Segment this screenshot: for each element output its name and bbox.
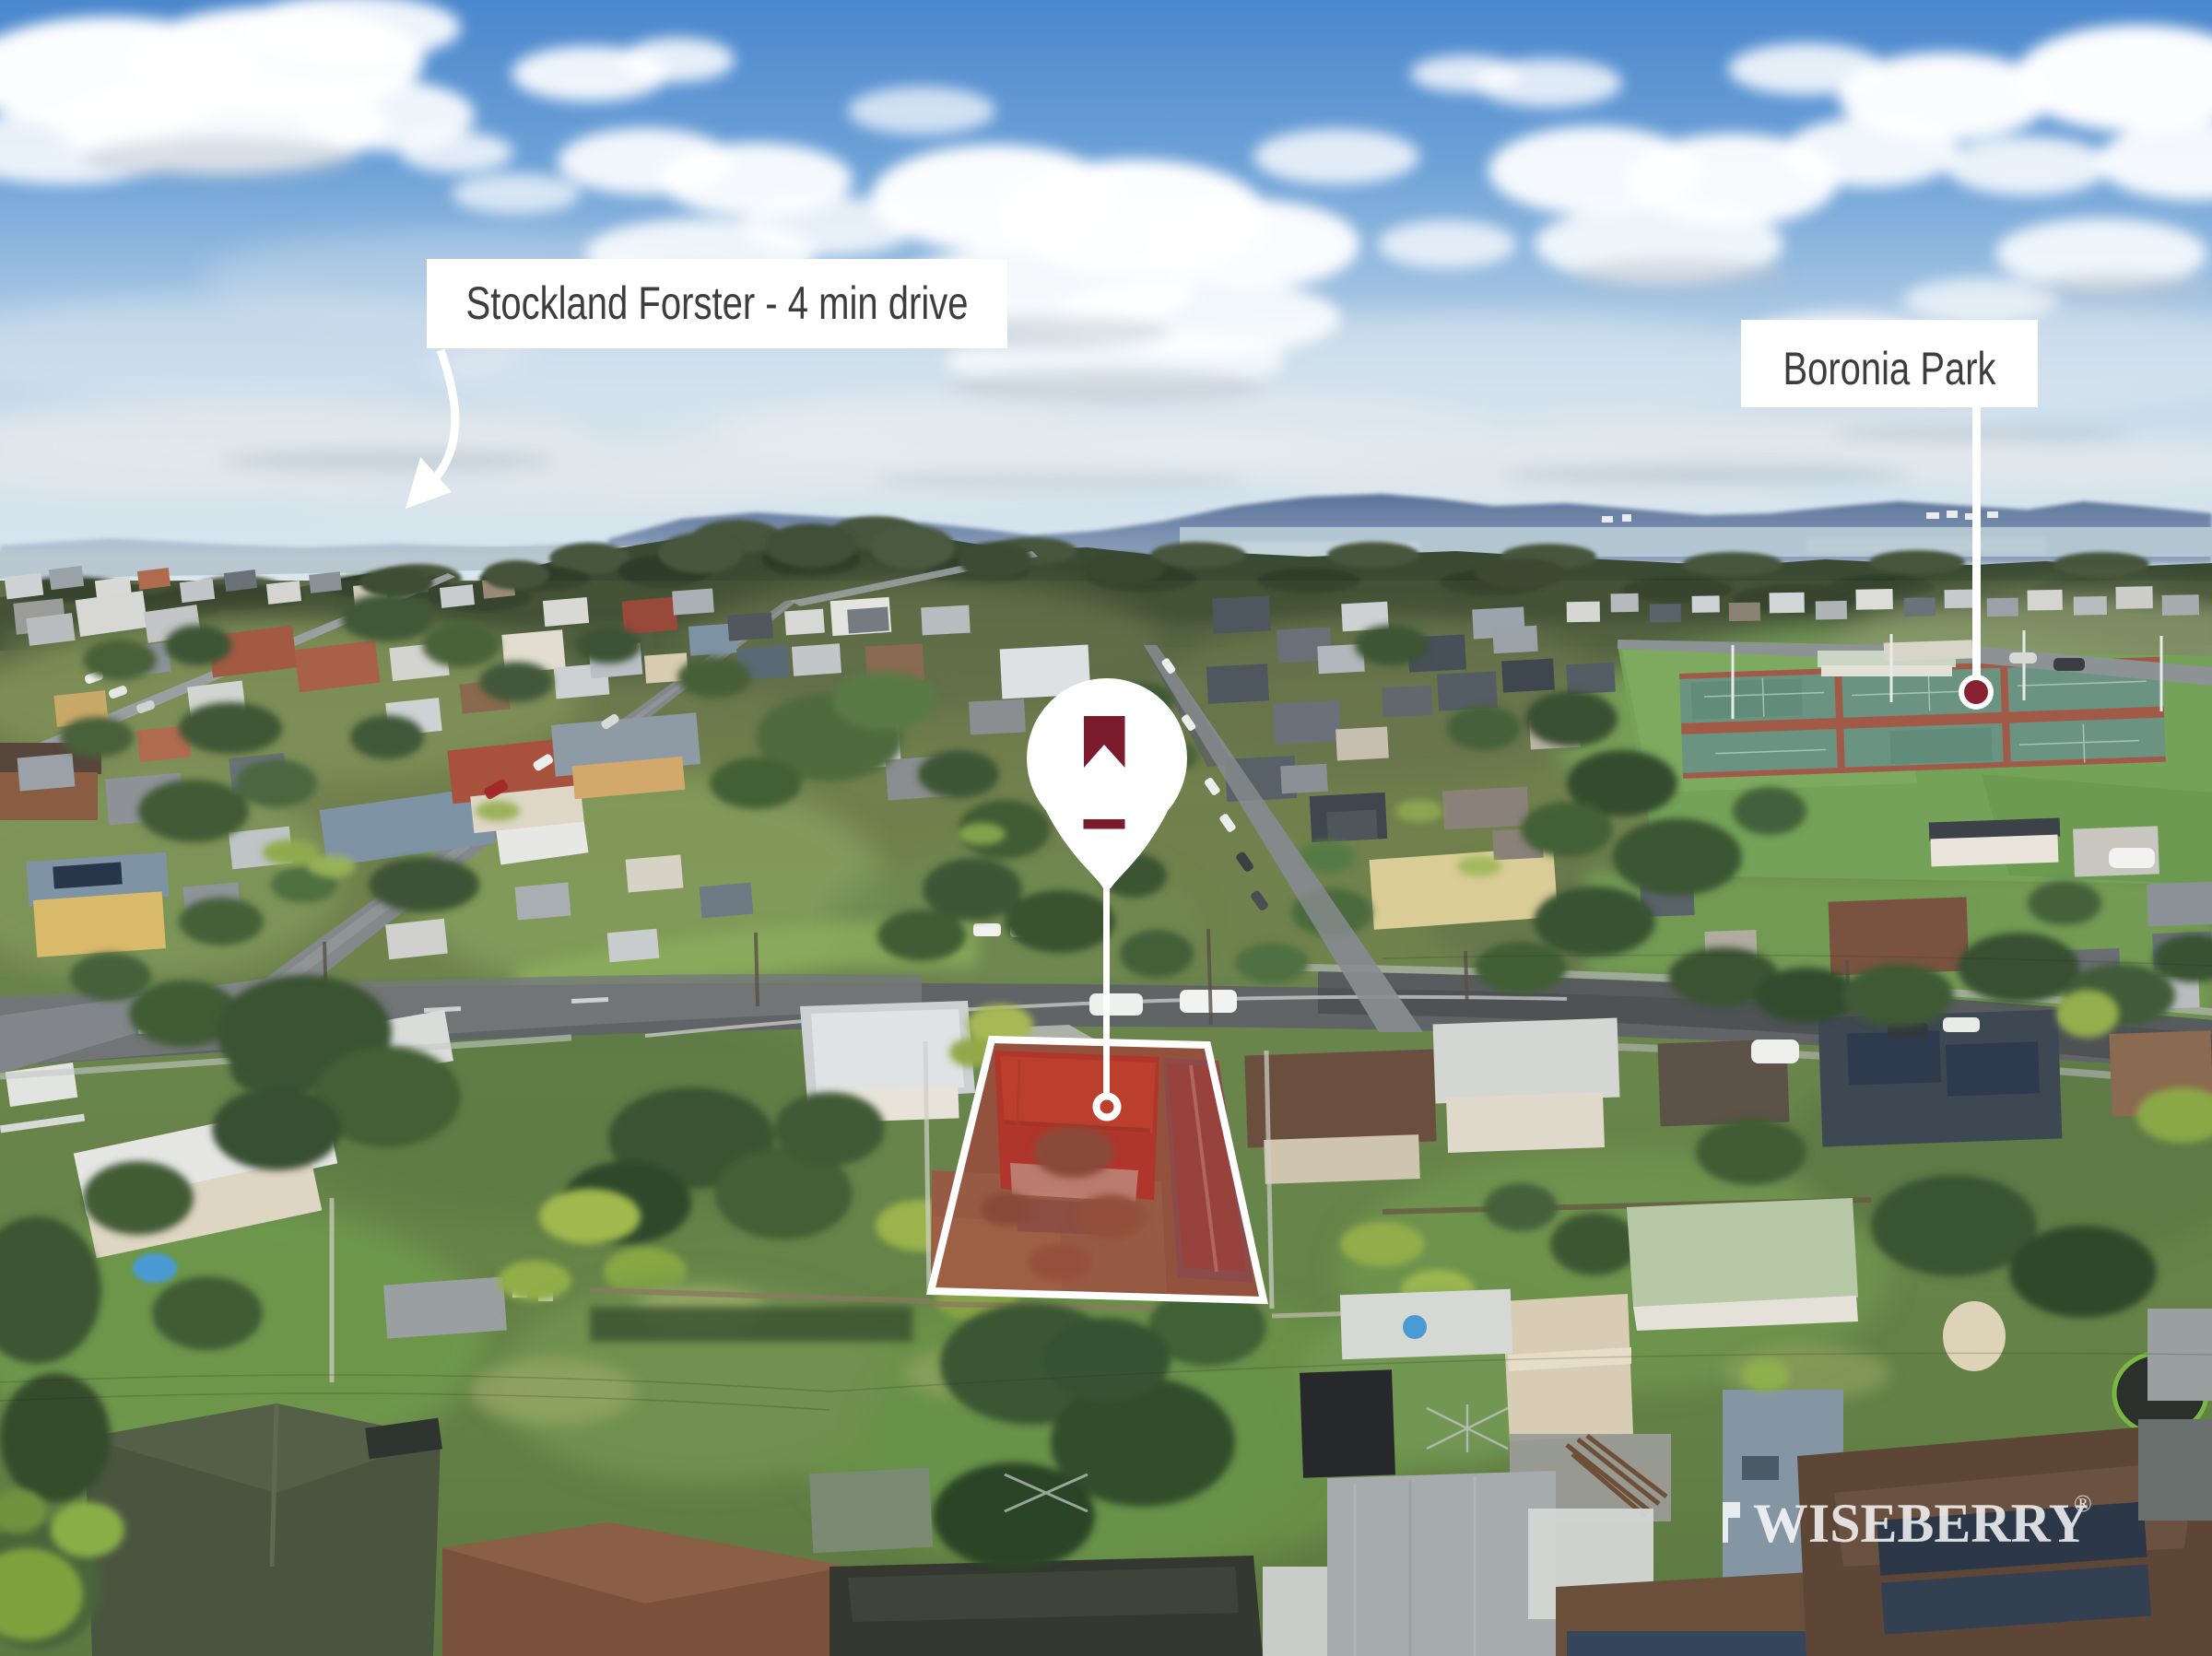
svg-text:®: ® (2074, 1490, 2092, 1517)
svg-text:Stockland Forster - 4 min driv: Stockland Forster - 4 min drive (466, 277, 969, 329)
svg-text:WISEBERRY: WISEBERRY (1753, 1493, 2088, 1554)
svg-text:Boronia Park: Boronia Park (1783, 343, 1997, 394)
